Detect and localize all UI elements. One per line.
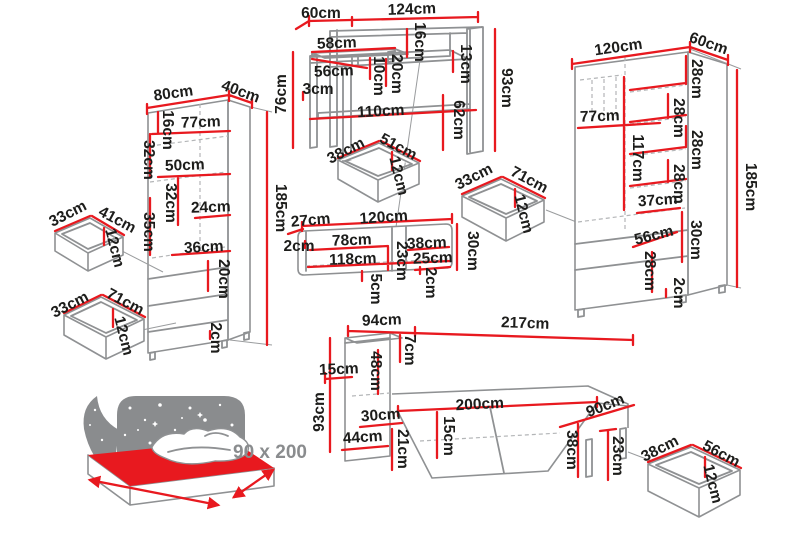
dim-wl-shelf-gap: 24cm bbox=[191, 198, 231, 216]
dim-desk-lower-shelf: 110cm bbox=[357, 102, 405, 121]
dim-desk-gap-top: 16cm bbox=[411, 22, 428, 62]
dim-bed-headboard: 94cm bbox=[362, 311, 402, 329]
dim-shelf-height: 30cm bbox=[464, 231, 481, 271]
dim-wr-inner-width: 77cm bbox=[580, 107, 620, 125]
dim-desk-depth: 60cm bbox=[301, 5, 341, 22]
dim-bed-total: 217cm bbox=[501, 314, 550, 333]
furniture-dimensions-page: 80cm 40cm 16cm 77cm 32cm 50cm 32cm 24cm … bbox=[0, 0, 800, 533]
drawer-33x71: 33cm 71cm 12cm bbox=[48, 285, 146, 359]
dim-shelf-right-inner: 23cm bbox=[393, 241, 410, 281]
dim-wl-shelf-width: 50cm bbox=[165, 156, 205, 174]
dim-bed-drawer-height: 38cm bbox=[563, 430, 580, 470]
dim-wl-drawer-height: 20cm bbox=[215, 259, 232, 299]
dim-desk-width: 124cm bbox=[387, 0, 436, 19]
dim-desk-riser: 10cm bbox=[370, 56, 387, 96]
dim-wl-top-gap: 16cm bbox=[159, 110, 176, 150]
wall-shelf: 27cm 120cm 2cm 78cm 38cm 118cm 25cm 30cm… bbox=[283, 207, 481, 304]
dim-wl-inner-width: 77cm bbox=[181, 113, 221, 131]
dim-wl-drawer-width: 36cm bbox=[184, 238, 224, 257]
drawer-33x41: 33cm 41cm 12cm bbox=[46, 197, 138, 271]
bed-size-icon: 90 x 200 bbox=[84, 396, 307, 505]
drawer-38x51: 38cm 51cm 12cm bbox=[324, 130, 420, 202]
dim-shelf-inner-width: 118cm bbox=[329, 250, 377, 269]
dim-bed-hb-inner: 48cm bbox=[367, 351, 384, 391]
dim-desk-edge: 3cm bbox=[302, 81, 333, 98]
dim-wl-base: 2cm bbox=[207, 322, 224, 353]
dim-shelf-width: 120cm bbox=[359, 207, 408, 227]
dim-bed-shelf1: 30cm bbox=[360, 406, 401, 426]
dim-bed-shelf3: 21cm bbox=[394, 429, 411, 469]
dim-desk-leg: 62cm bbox=[450, 100, 467, 140]
dim-shelf-panel: 2cm bbox=[283, 238, 314, 255]
dim-wr-drawer-width: 37cm bbox=[637, 191, 678, 211]
dim-db-depth: 33cm bbox=[48, 288, 91, 321]
dim-bed-length: 200cm bbox=[455, 395, 504, 415]
dim-shelf-panel2: 2cm bbox=[422, 267, 439, 298]
dim-desk-inner-width: 56cm bbox=[314, 62, 354, 80]
dim-shelf-bottom: 5cm bbox=[367, 273, 384, 304]
dim-wr-drawer-height: 30cm bbox=[687, 220, 704, 260]
dim-bed-leg: 23cm bbox=[609, 436, 626, 476]
drawer-38x56: 38cm 56cm 12cm bbox=[638, 432, 742, 517]
dim-wl-upper: 32cm bbox=[140, 140, 157, 180]
furniture-dimensions-diagram: 80cm 40cm 16cm 77cm 32cm 50cm 32cm 24cm … bbox=[0, 0, 800, 533]
dim-desk-height: 93cm bbox=[498, 68, 515, 108]
dim-desk-gap-mid: 20cm bbox=[388, 54, 405, 94]
dim-bed-top: 7cm bbox=[401, 334, 418, 365]
dim-wr-gap3: 28cm bbox=[688, 130, 705, 170]
dim-wr-inner-height: 117cm bbox=[629, 134, 646, 181]
dim-wr-height: 185cm bbox=[742, 163, 759, 211]
dim-wr-gap2: 28cm bbox=[670, 98, 687, 138]
dim-desk-left-height: 76cm bbox=[273, 74, 290, 114]
bed: 94cm 217cm 7cm 48cm 15cm 93cm 30cm 44cm … bbox=[311, 311, 657, 480]
dim-wr-base: 2cm bbox=[670, 277, 687, 308]
dim-wl-height: 185cm bbox=[272, 184, 289, 232]
dim-bed-shelf2: 44cm bbox=[342, 428, 383, 448]
dim-wl-lower: 35cm bbox=[140, 212, 157, 252]
dim-bed-drawer-gap: 15cm bbox=[440, 416, 457, 456]
dim-wr-gap1: 28cm bbox=[688, 59, 705, 99]
dim-desk-shelf-width: 58cm bbox=[317, 34, 357, 52]
dim-wr-drawer-height2: 28cm bbox=[641, 251, 658, 291]
dim-shelf-depth: 27cm bbox=[290, 210, 331, 230]
bed-size-label: 90 x 200 bbox=[233, 442, 307, 463]
dim-bed-gap: 15cm bbox=[319, 360, 359, 378]
dim-wl-mid: 32cm bbox=[162, 183, 179, 223]
dim-desk-gap-right: 13cm bbox=[457, 44, 474, 84]
dim-shelf-left-comp: 78cm bbox=[332, 231, 372, 249]
dim-bed-height: 93cm bbox=[311, 392, 328, 432]
dim-shelf-inner-height: 25cm bbox=[413, 249, 453, 267]
wide-wardrobe: 120cm 60cm 28cm 28cm 28cm 28cm 77cm 117c… bbox=[572, 29, 759, 317]
